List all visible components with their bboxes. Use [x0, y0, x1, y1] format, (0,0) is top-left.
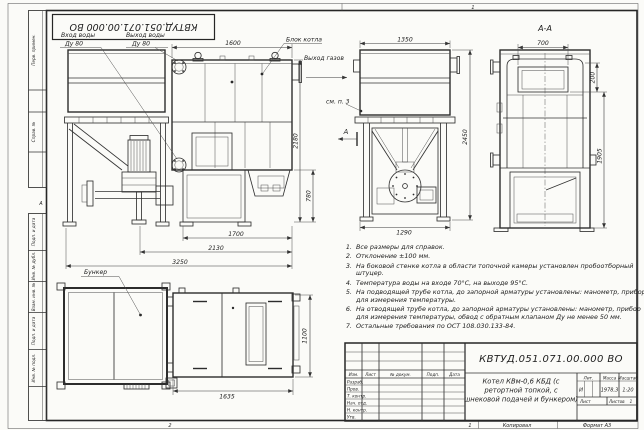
tb-col-izm: Изм.: [349, 372, 359, 377]
dim-700: 700: [537, 40, 549, 47]
dim-1100: 1100: [302, 328, 309, 344]
tb-row-nkontr: Н. контр.: [347, 408, 367, 413]
margin-label-inv-dubl: Инв. № дубл.: [31, 252, 36, 281]
dim-2130: 2130: [208, 245, 224, 252]
tb-massa-label: Масса: [603, 376, 617, 381]
plan-view-linework: [57, 277, 313, 396]
bottom-format-label: Формат А3: [583, 423, 611, 429]
label-blok-kotla: Блок котла: [286, 37, 322, 44]
tb-col-podp: Подп.: [427, 372, 440, 377]
bottom-sheet-no: 1: [468, 423, 471, 429]
dim-200: 200: [590, 72, 597, 84]
tb-list-label: Лист: [579, 399, 591, 404]
dim-1905: 1905: [597, 148, 604, 164]
side-view-linework: [60, 44, 322, 270]
stamp-doc-number: КВТУД.051.071.00.000 ВО: [69, 21, 197, 32]
tb-row-utv: Утв.: [347, 415, 356, 420]
drawing-linework: КВТУД.051.071.00.000 ВО Перв. примен. Сп…: [0, 0, 644, 430]
dim-1600: 1600: [225, 40, 241, 47]
note-item: На подводящей трубе котла, до запорной а…: [354, 289, 644, 305]
dim-1635: 1635: [219, 394, 235, 401]
section-arrow-label: А: [343, 128, 349, 136]
tb-row-razrab: Разраб.: [347, 380, 363, 385]
note-item: Отклонение ±100 мм.: [354, 253, 644, 261]
tb-lit-value: И: [579, 388, 583, 394]
margin-label-vzam: Взам. инв. №: [31, 282, 36, 311]
bottom-copied-label: Копировал: [503, 423, 532, 429]
tb-name-line2: ретортной топкой, с: [483, 387, 558, 395]
dim-2180: 2180: [293, 133, 300, 149]
margin-label-sprav: Справ. №: [31, 121, 36, 142]
dim-3250: 3250: [172, 259, 188, 266]
tb-row-nach: Нач. отд.: [347, 401, 367, 406]
margin-label-perv: Перв. примен.: [31, 34, 36, 65]
section-title: А-А: [537, 24, 552, 33]
tb-scale-value: 1:20: [622, 388, 633, 394]
tb-name-line1: Котел КВм-0,6 КБД (с: [482, 378, 559, 386]
tb-scale-label: Масштаб: [618, 376, 638, 381]
note-item: Остальные требования по ОСТ 108.030.133-…: [354, 323, 644, 331]
note-item: Температура воды на входе 70°С, на выход…: [354, 280, 644, 288]
tb-col-data: Дата: [448, 372, 460, 377]
tb-row-tkontr: Т. контр.: [347, 394, 366, 399]
label-bunker: Бункер: [84, 269, 107, 276]
label-vhod-vody: Вход воды: [61, 32, 95, 39]
margin-label-inv-podl: Инв. № подл.: [31, 354, 36, 383]
zone-top: 1: [471, 5, 474, 11]
tb-name-line3: шнековой подачей и бункером): [464, 396, 578, 404]
label-sm-p3: см. п. 3: [326, 99, 350, 106]
note-item: На боковой стенке котла в области топочн…: [354, 263, 644, 279]
drawing-sheet: КВТУД.051.071.00.000 ВО Перв. примен. Сп…: [0, 0, 644, 430]
front-view-linework: [306, 41, 473, 232]
label-vyhod-vody: Выход воды: [126, 32, 165, 39]
tb-massa-value: 1978,3: [601, 388, 619, 394]
margin-label-podp2: Подп. и дата: [31, 316, 36, 345]
note-item: На отводящей трубе котла, до запорной ар…: [354, 306, 644, 322]
note-item: Все размеры для справок.: [354, 244, 644, 252]
dim-780: 780: [306, 190, 313, 202]
notes-list: Все размеры для справок. Отклонение ±100…: [338, 244, 644, 333]
tb-lit-label: Лит.: [583, 376, 594, 381]
tb-row-prov: Пров.: [347, 387, 359, 392]
tb-listov-label: Листов: [608, 399, 625, 404]
margin-label-podp1: Подп. и дата: [31, 217, 36, 246]
label-vyhod-gazov: Выход газов: [304, 55, 344, 62]
label-vyhod-du: Ду 80: [131, 41, 150, 48]
dim-1350: 1350: [397, 37, 413, 44]
dim-2450: 2450: [462, 129, 469, 145]
zone-bottom-left: 2: [168, 423, 171, 429]
tb-doc-number: КВТУД.051.071.00.000 ВО: [479, 354, 623, 365]
margin-marker-a: А: [38, 201, 43, 207]
sheet-texts: КВТУД.051.071.00.000 ВО Перв. примен. Сп…: [31, 5, 638, 429]
label-vhod-du: Ду 80: [64, 41, 83, 48]
tb-col-dokum: № докум.: [389, 372, 411, 377]
dim-1700: 1700: [228, 231, 244, 238]
tb-col-list: Лист: [364, 372, 376, 377]
dim-1290: 1290: [396, 230, 412, 237]
tb-listov-value: 1: [630, 399, 633, 404]
